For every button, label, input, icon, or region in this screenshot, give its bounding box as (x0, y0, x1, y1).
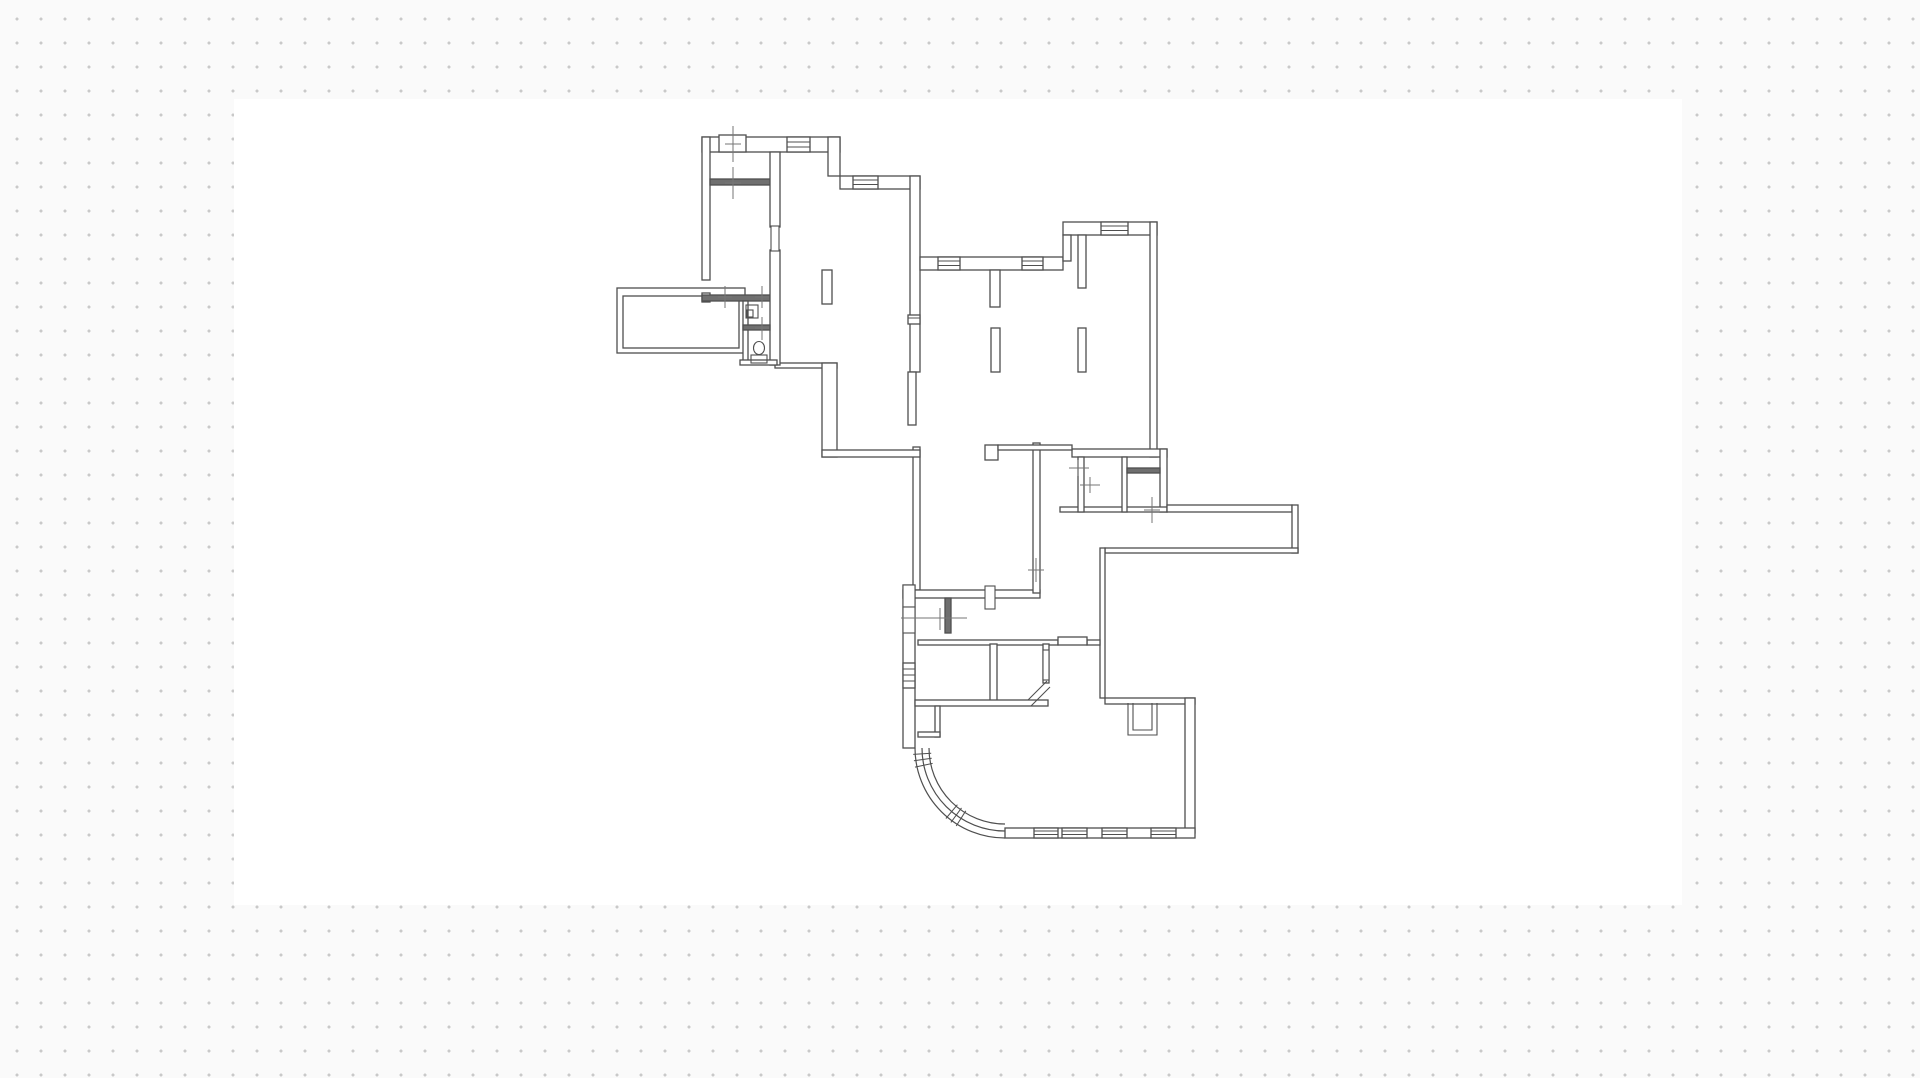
curved-wall (915, 748, 1005, 838)
wall-outer (1072, 449, 1167, 457)
wall-outer (1185, 698, 1195, 833)
wall-interior (1078, 235, 1086, 288)
diagonal-wall (1028, 681, 1047, 700)
wall-interior (998, 445, 1072, 450)
door-jamb (903, 585, 915, 607)
wall-interior (985, 445, 998, 460)
wall-interior (1087, 640, 1100, 645)
wall-interior (990, 644, 997, 702)
wall-interior (1058, 637, 1087, 645)
wall-outer (903, 590, 1040, 598)
niche (1133, 703, 1152, 730)
window (908, 315, 920, 324)
wall-interior (918, 732, 940, 737)
window (1034, 828, 1058, 838)
wall-outer (1105, 548, 1298, 553)
wall-outer (1063, 235, 1071, 261)
wall-interior (945, 598, 951, 633)
wall-outer (702, 137, 710, 280)
wall-interior (710, 179, 773, 185)
wall-outer (623, 296, 739, 348)
toilet-fixture (754, 342, 765, 355)
wall-interior (1127, 468, 1160, 473)
floor-plan (0, 0, 1920, 1078)
wall-outer (1150, 222, 1157, 457)
column (991, 328, 1000, 372)
column (822, 270, 832, 304)
curved-wall (929, 748, 1005, 824)
door-jamb (771, 226, 779, 251)
window (1102, 828, 1127, 838)
wall-outer (1105, 698, 1195, 704)
curved-wall-hatch (913, 753, 931, 754)
wall-interior (770, 250, 780, 365)
wall-outer (1292, 505, 1298, 553)
wall-interior (770, 152, 780, 227)
wall-interior (1122, 457, 1127, 512)
column (1078, 328, 1086, 372)
wall-interior (915, 700, 1048, 706)
curved-wall (922, 748, 1005, 831)
wall-outer (1167, 505, 1292, 512)
wall-interior (702, 295, 775, 301)
wall-outer (913, 447, 920, 590)
window (1101, 222, 1128, 235)
window (1151, 828, 1176, 838)
wall-outer (910, 176, 920, 372)
door-jamb (1043, 650, 1049, 680)
wall-outer (1160, 449, 1167, 512)
wall-outer (822, 363, 837, 457)
wall-outer (908, 372, 916, 425)
window (853, 176, 878, 189)
wall-outer (822, 450, 920, 457)
canvas-grid[interactable] (0, 0, 1920, 1078)
window (787, 137, 810, 152)
door-jamb (985, 586, 995, 609)
wall-outer (1100, 548, 1105, 698)
wall-outer (840, 176, 920, 189)
window (1062, 828, 1087, 838)
wall-interior (918, 640, 1058, 645)
wall-outer (828, 137, 840, 176)
window (1022, 257, 1043, 270)
column (990, 270, 1000, 307)
door-jamb (903, 607, 915, 633)
window (938, 257, 960, 270)
